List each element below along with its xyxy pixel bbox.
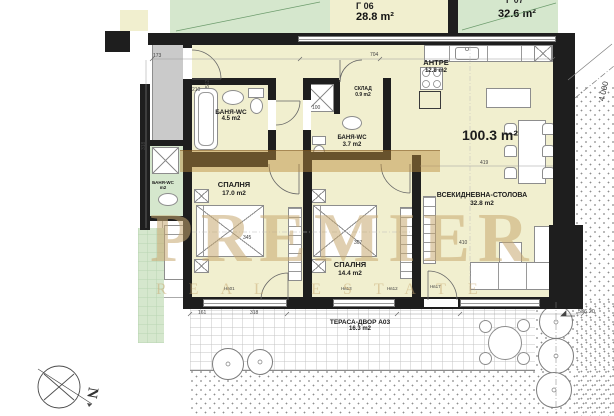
dim-text: 410 [459,240,467,246]
dining-chair [504,167,517,179]
terrace-chair [479,352,492,365]
dim-text: 307 [354,240,362,246]
label-bedroom2: СПАЛНЯ 14.4 m2 [318,261,382,277]
bed [313,205,377,257]
wall-bath-main-top [188,78,276,85]
wall-bedroom2-right [412,155,421,297]
sink [342,116,362,130]
wall-neighborbath-bottom [148,216,188,221]
dim-text: 318 [141,142,147,150]
unit-g06-area: 28.8 m² [330,11,448,23]
wall-right-lower [549,225,583,309]
window-code: Нв17 [430,284,441,289]
neighbor-garden-floor [138,228,164,343]
tree-icon [538,338,574,374]
bed [196,205,264,257]
window-bedroom1 [203,299,287,307]
toilet-tank [312,136,326,145]
wardrobe [288,207,302,281]
shower-cabin [152,147,179,174]
coffee-table [499,242,522,263]
window-code: Нв01 [224,286,235,291]
sofa-bottom [470,262,553,290]
nightstand [194,259,209,273]
neighbor-bed [164,225,185,280]
sink [158,193,178,206]
dim-text: 419 [480,160,488,166]
label-living: ВСЕКИДНЕВНА-СТОЛОВА 32.8 m2 [425,192,539,208]
wall-stub-topleft [105,31,130,52]
wall-right-upper [553,33,575,228]
dim-text: 161 [198,310,206,316]
wall-bath-main-bottom [183,152,276,160]
wall-bedroom-divider [303,160,312,297]
sink [222,90,244,105]
dim-text: 345 [243,235,251,241]
nightstand [311,189,326,203]
dining-chair [504,145,517,157]
floor-plan: Г 06 28.8 m² Г 07 32.6 m² [0,0,614,416]
dim-text: 100 [312,105,320,111]
window-band-top [298,36,556,42]
elevation-text: 536.20 [578,309,595,315]
entry-door-opening [183,48,192,79]
label-bath-main: БАНЯ-WC 4.5 m2 [202,109,260,123]
terrace-door-opening [424,299,458,307]
window-living [460,299,540,307]
neighbor-sliver-floor [120,10,148,31]
window-bedroom2 [333,299,395,307]
unit-g06-floor: Г 06 28.8 m² [330,0,448,33]
kitchen-cabinet [419,91,441,109]
terrace-chair [479,320,492,333]
compass-north-label: N [82,386,101,400]
dim-text: 173 [153,53,161,59]
label-bedroom1: СПАЛНЯ 17.0 m2 [202,181,266,197]
bush-icon [247,349,273,375]
neighbor-terrace-top-floor [170,0,330,33]
tree-icon [536,372,572,408]
wall-bath2-bottom [303,152,391,160]
fridge [534,45,552,62]
terrace-chair [517,352,530,365]
dim-text: 318 [250,310,258,316]
label-total-area: 100.3 m² [452,127,528,143]
toilet-tank [248,88,264,98]
tree-icon [539,305,573,339]
bath2-door-opening [303,100,311,130]
dim-text: 704 [370,52,378,58]
label-antre: АНТРЕ 12.8 m2 [400,59,472,75]
bath-main-door-opening [268,100,276,130]
unit-g07-area: 32.6 m² [458,5,558,20]
dim-text: 562 [205,80,211,88]
label-neighbor-bath: БАНЯ-WC m2 [144,180,182,190]
label-bath-second: БАНЯ-WC 3.7 m2 [326,135,378,149]
window-code: Нв13 [341,286,352,291]
wall-unit-divider-top [448,0,458,33]
label-sklad: СКЛАД 0.9 m2 [340,87,386,99]
bush-icon [212,348,244,380]
unit-g07-floor: Г 07 32.6 m² [458,0,558,33]
window-code: Нв12 [387,286,398,291]
label-terrace: ТЕРАСА-ДВОР А03 16.3 m2 [300,319,420,333]
wall-left-outer [140,84,150,230]
dim-text: 210 [192,87,200,93]
terrace-chair [517,319,530,332]
kitchen-island [486,88,531,108]
wall-corridor-bottom [148,140,188,146]
wall-bedroom1-top [183,160,268,167]
unit-g06-code: Г 06 [330,0,448,11]
